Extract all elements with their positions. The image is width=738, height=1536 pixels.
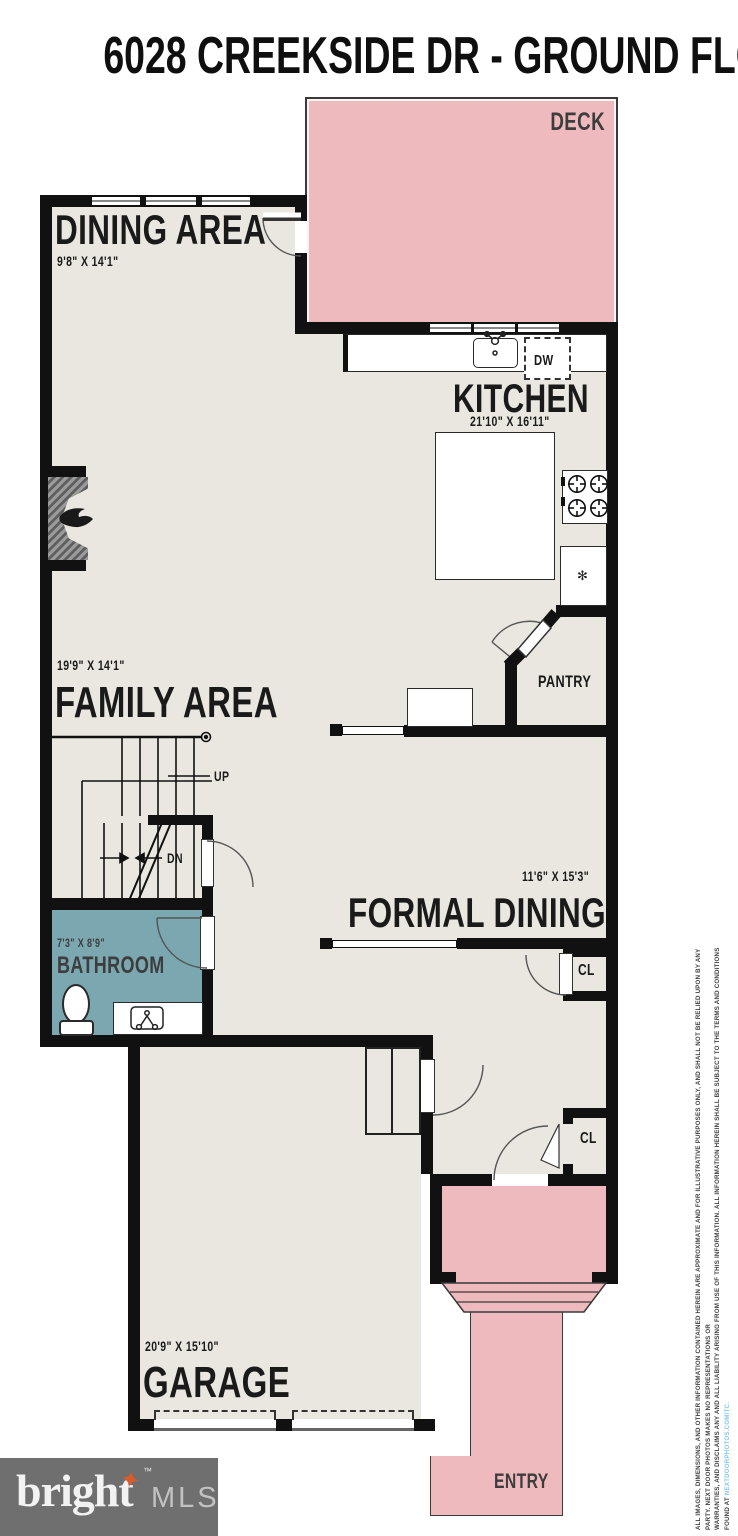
- stairs-up-label: UP: [214, 768, 229, 784]
- brightmls-logo-text: bright: [16, 1464, 133, 1517]
- stairs-door-arc: [207, 841, 253, 887]
- front-door-arc: [494, 1126, 548, 1180]
- brightmls-trademark: ™: [143, 1466, 152, 1476]
- closet1-door-arc: [526, 955, 566, 995]
- stairs-down-label: DN: [167, 850, 183, 866]
- brightmls-suffix: MLS: [151, 1482, 220, 1515]
- dining-area-label: DINING AREA: [55, 206, 266, 254]
- disclaimer-text: ALL IMAGES, DIMENSIONS, AND OTHER INFORM…: [694, 938, 720, 1530]
- vanity-sink-icon: [131, 1007, 163, 1029]
- floor-plan: 6028 CREEKSIDE DR - GROUND FLOOR DECK EN…: [0, 0, 738, 1536]
- formal-dining-dimensions: 11'6" X 15'3": [522, 868, 589, 884]
- entry-steps: [442, 1283, 606, 1312]
- closet2-label: CL: [580, 1130, 597, 1148]
- staircase: [52, 733, 212, 904]
- garage-label: GARAGE: [143, 1358, 290, 1408]
- fireplace-flame-icon: [59, 508, 93, 527]
- deck-door-arc: [263, 218, 301, 256]
- disclaimer-link: NEXTDOORPHOTOS.COM/TC.: [724, 1402, 731, 1495]
- family-area-dimensions: 19'9" X 14'1": [57, 657, 125, 673]
- pantry-door-leaf: [518, 620, 551, 657]
- disclaimer-line1: ALL IMAGES, DIMENSIONS, AND OTHER INFORM…: [694, 938, 713, 1530]
- closet1-label: CL: [578, 962, 595, 980]
- bathroom-label: BATHROOM: [57, 952, 165, 980]
- brightmls-star-icon: ✦: [118, 1464, 143, 1496]
- toilet-icon: [60, 985, 93, 1035]
- brightmls-logo: bright ✦ ™ MLS: [0, 1458, 218, 1536]
- closet2-door-leaf: [541, 1124, 559, 1168]
- garage-dimensions: 20'9" X 15'10": [145, 1338, 219, 1354]
- stove-burners: [561, 476, 607, 516]
- stairs-down-arrows: [100, 854, 162, 863]
- bathroom-dimensions: 7'3" X 8'9": [57, 936, 105, 950]
- pantry-label: PANTRY: [538, 672, 591, 692]
- faucet-icon: [485, 332, 506, 355]
- family-area-label: FAMILY AREA: [55, 678, 278, 728]
- dining-area-dimensions: 9'8" X 14'1": [57, 253, 118, 269]
- pantry-wall-diagonal-b: [508, 652, 522, 666]
- formal-dining-label: FORMAL DINING: [348, 889, 606, 937]
- kitchen-dimensions: 21'10" X 16'11": [470, 413, 550, 429]
- disclaimer-line2: WARRANTIES, AND DISCLAIMS ANY AND ALL LI…: [713, 938, 732, 1530]
- garage-door-arc: [433, 1065, 483, 1115]
